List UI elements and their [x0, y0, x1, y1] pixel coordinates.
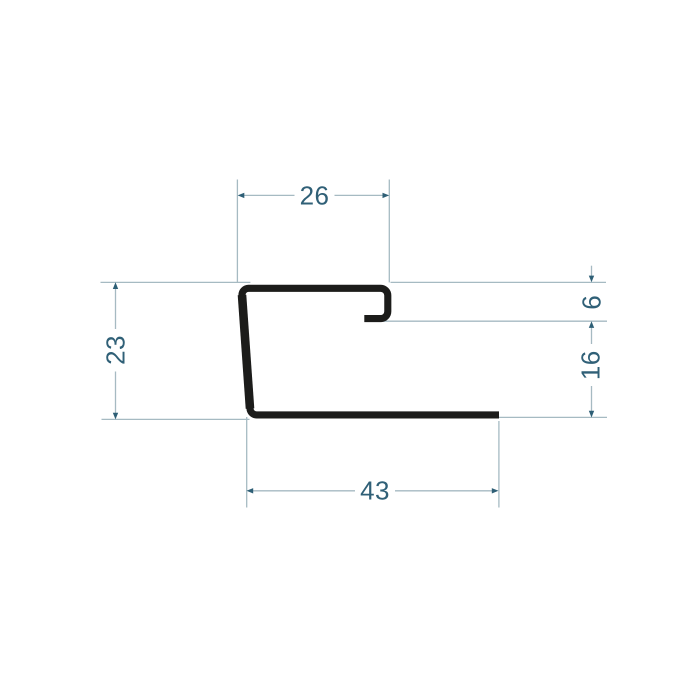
svg-text:16: 16 — [576, 350, 606, 380]
svg-text:6: 6 — [577, 295, 607, 310]
svg-text:43: 43 — [360, 476, 390, 506]
svg-text:23: 23 — [101, 335, 131, 365]
svg-text:26: 26 — [300, 181, 330, 211]
